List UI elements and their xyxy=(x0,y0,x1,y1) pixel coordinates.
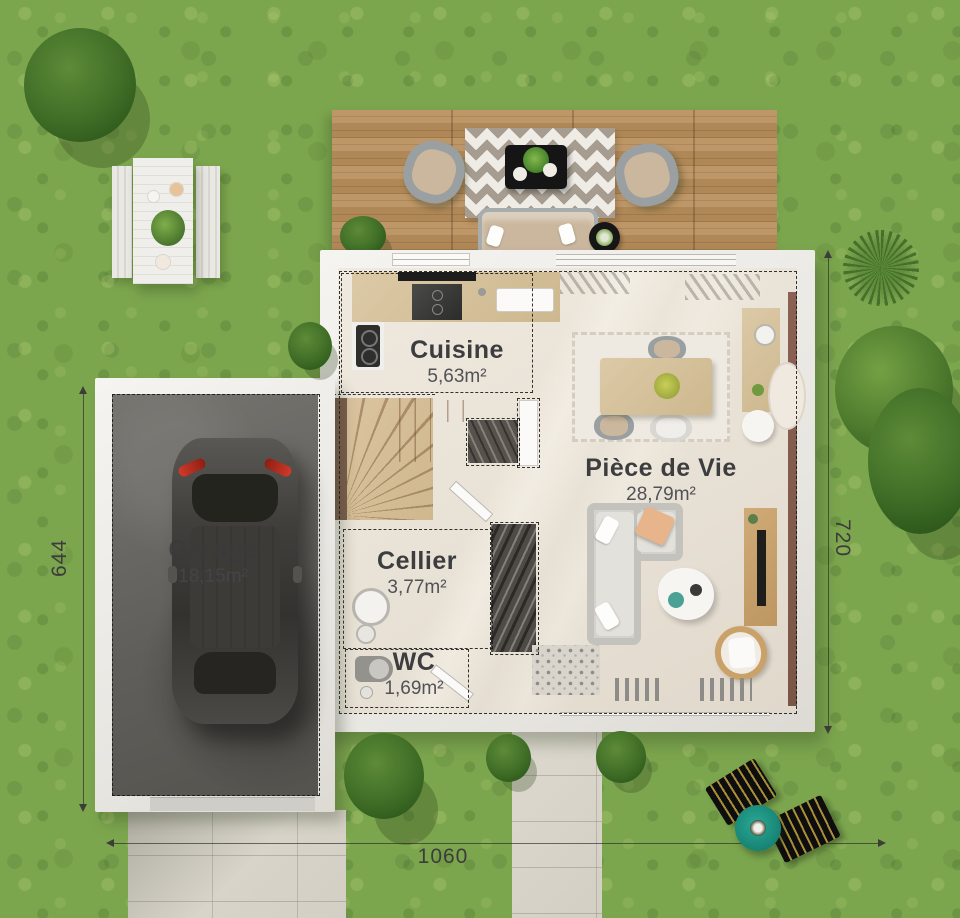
dimension-label-left: 644 xyxy=(48,539,72,577)
sofa-pillow xyxy=(558,222,577,245)
garage-door xyxy=(150,797,315,811)
plate xyxy=(513,167,527,181)
room-area: 3,77m² xyxy=(377,577,457,599)
room-area: 28,79m² xyxy=(585,484,736,506)
dimension-label-bottom: 1060 xyxy=(418,845,469,869)
doorframe-boundary xyxy=(517,398,540,468)
floor-plan-scene: 644 720 1060 Cuisine 5,63m² Pièce de Vie… xyxy=(0,0,960,918)
parasol xyxy=(735,805,781,851)
driveway xyxy=(128,810,346,918)
palm-plant xyxy=(843,230,919,306)
plate xyxy=(169,182,184,197)
bush xyxy=(486,734,531,782)
tree xyxy=(344,733,424,819)
room-name: Cuisine xyxy=(410,336,504,365)
room-area: 18,15m² xyxy=(168,566,257,588)
table-plant xyxy=(151,210,185,246)
shelf-boundary xyxy=(490,522,539,655)
room-label-piece-de-vie: Pièce de Vie 28,79m² xyxy=(585,454,736,506)
car-windshield xyxy=(194,652,276,694)
shadow xyxy=(128,810,327,918)
bench xyxy=(112,166,132,278)
bench xyxy=(196,166,220,278)
plate xyxy=(543,163,557,177)
tree xyxy=(868,388,960,534)
arrow-up-icon xyxy=(79,386,87,394)
side-table-plant xyxy=(596,229,613,246)
plate xyxy=(147,190,160,203)
bay-window xyxy=(556,254,736,266)
stairs-boundary xyxy=(333,394,435,395)
room-label-garage: Garage 18,15m² xyxy=(168,536,257,588)
room-name: Garage xyxy=(168,536,257,565)
arrow-down-icon xyxy=(79,804,87,812)
dimension-line-left xyxy=(83,392,84,806)
room-name: WC xyxy=(384,648,443,677)
room-area: 5,63m² xyxy=(410,366,504,388)
room-label-cellier: Cellier 3,77m² xyxy=(377,547,457,599)
room-label-wc: WC 1,69m² xyxy=(384,648,443,700)
room-name: Pièce de Vie xyxy=(585,454,736,483)
picnic-table xyxy=(133,158,193,284)
car-rear-window xyxy=(192,474,278,522)
closet-boundary xyxy=(466,418,520,466)
room-area: 1,69m² xyxy=(384,678,443,700)
dimension-line-right xyxy=(828,256,829,728)
garden-table-set xyxy=(108,158,226,284)
sofa-pillow xyxy=(485,224,504,247)
arrow-down-icon xyxy=(824,726,832,734)
bush xyxy=(596,731,646,783)
car-mirror xyxy=(293,566,302,583)
arrow-right-icon xyxy=(878,839,886,847)
arrow-up-icon xyxy=(824,250,832,258)
plate xyxy=(155,254,171,270)
coffee-table xyxy=(505,145,567,189)
dimension-label-right: 720 xyxy=(830,519,854,557)
side-table xyxy=(589,222,620,253)
tree xyxy=(24,28,136,142)
room-label-cuisine: Cuisine 5,63m² xyxy=(410,336,504,388)
arrow-left-icon xyxy=(106,839,114,847)
room-name: Cellier xyxy=(377,547,457,576)
bush xyxy=(288,322,332,370)
window xyxy=(392,253,470,266)
